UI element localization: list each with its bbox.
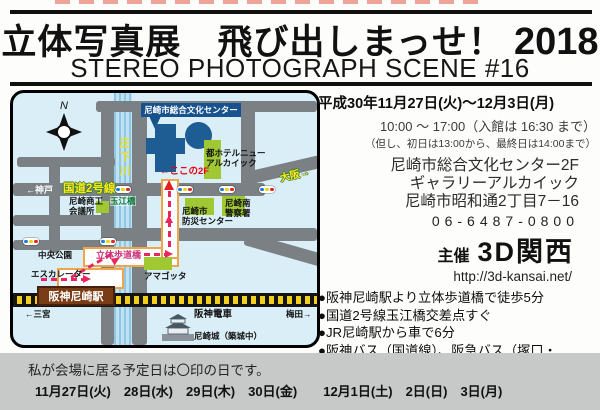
traffic-light-icon bbox=[23, 238, 39, 245]
road-middle bbox=[101, 228, 317, 241]
access-item: ●阪神尼崎駅より立体歩道橋で徒歩5分 bbox=[318, 289, 596, 306]
river-label: 庄下川 bbox=[117, 137, 130, 179]
castle-label: 尼崎城（築城中） bbox=[194, 331, 262, 341]
event-hours-note: （但し、初日は13:00から、最終日は14:00まで） bbox=[318, 136, 596, 151]
road-side-street-a bbox=[17, 157, 115, 167]
hanshin-amagasaki-station-box: 阪神尼崎駅 bbox=[37, 286, 115, 306]
traffic-light-icon bbox=[115, 186, 131, 193]
escalator-label: エスカレーター bbox=[31, 269, 91, 279]
event-info-panel: 平成30年11月27日(火)～12月3日(月) 10:00 ～ 17:00（入館… bbox=[318, 92, 596, 376]
chamber-label: 尼崎商工 会議所 bbox=[69, 196, 103, 216]
host-name: 3D関西 bbox=[477, 237, 574, 267]
hotel-label: 都ホテルニュー アルカイック bbox=[206, 148, 266, 168]
website-url: http://3d-kansai.net/ bbox=[318, 269, 596, 284]
amagotta-building bbox=[144, 257, 172, 270]
road-side-street-b bbox=[13, 215, 114, 226]
schedule-footer: 私が会場に居る予定日は〇印の日です。 11月27日(火) 28日(水) 29日(… bbox=[0, 353, 600, 410]
page-subtitle: STEREO PHOTOGRAPH SCENE #16 bbox=[0, 53, 600, 84]
venue-gallery: ギャラリーアルカイック bbox=[318, 175, 579, 193]
access-item: ●国道2号線玉江橋交差点すぐ bbox=[318, 307, 596, 324]
tamae-bridge-label: 玉江橋 bbox=[110, 196, 136, 206]
route-arrow-icon bbox=[164, 180, 174, 190]
venue-phone: 06-6487-0800 bbox=[318, 213, 596, 229]
culture-center-label: 尼崎市総合文化センター bbox=[144, 104, 238, 116]
venue-address: 尼崎市昭和通2丁目7－16 bbox=[318, 193, 579, 211]
station-label: 阪神尼崎駅 bbox=[49, 288, 104, 304]
access-map: N 尼崎市総合文化センター 阪神尼崎駅 庄下川 ←ここの2F 都ホテルニュー ア bbox=[10, 90, 320, 348]
river-shape bbox=[114, 93, 132, 345]
road-right-of-river bbox=[132, 101, 147, 345]
sannomiya-label: ←三宮 bbox=[25, 309, 51, 319]
police-label: 尼崎南 警察署 bbox=[225, 198, 251, 218]
traffic-light-icon bbox=[100, 238, 116, 245]
here-2f-label: ←ここの2F bbox=[160, 166, 209, 177]
svg-text:N: N bbox=[60, 100, 68, 112]
castle-icon bbox=[161, 314, 195, 341]
hanshin-line-label: 阪神電車 bbox=[194, 309, 232, 320]
event-dates: 平成30年11月27日(火)～12月3日(月) bbox=[318, 92, 596, 113]
venue-name: 尼崎市総合文化センター2F bbox=[318, 157, 579, 175]
road-side-street-vertical bbox=[49, 157, 60, 253]
overpass-label: 立体歩道橋 bbox=[96, 250, 141, 261]
central-park-label: 中央公園 bbox=[38, 250, 72, 260]
traffic-light-icon bbox=[177, 186, 193, 193]
route-dash bbox=[144, 253, 166, 256]
traffic-light-icon bbox=[219, 186, 235, 193]
kobe-label: ←神戸 bbox=[26, 185, 53, 196]
culture-center-building-wing bbox=[146, 138, 185, 154]
header-rule-bottom bbox=[10, 82, 592, 86]
traffic-light-icon bbox=[259, 186, 275, 193]
route-arrow-icon bbox=[165, 215, 173, 223]
umeda-label: 梅田→ bbox=[286, 309, 312, 319]
amagotta-label: アマゴッタ bbox=[144, 271, 187, 281]
route2-label: 国道2号線 bbox=[63, 183, 115, 197]
attendance-dates: 11月27日(火) 28日(水) 29日(木) 30日(金) 12月1日(土) … bbox=[35, 381, 502, 400]
compass-icon: N bbox=[37, 99, 91, 157]
host-label: 主催 bbox=[437, 248, 469, 265]
access-item: ●JR尼崎駅から車で6分 bbox=[318, 324, 596, 341]
cropped-top-text-strip bbox=[55, 0, 485, 4]
attendance-note: 私が会場に居る予定日は〇印の日です。 bbox=[28, 359, 270, 379]
route-arrow-icon bbox=[165, 250, 173, 258]
culture-center-label-box: 尼崎市総合文化センター bbox=[141, 103, 241, 117]
event-hours: 10:00 ～ 17:00（入館は 16:30 まで） bbox=[318, 116, 596, 135]
